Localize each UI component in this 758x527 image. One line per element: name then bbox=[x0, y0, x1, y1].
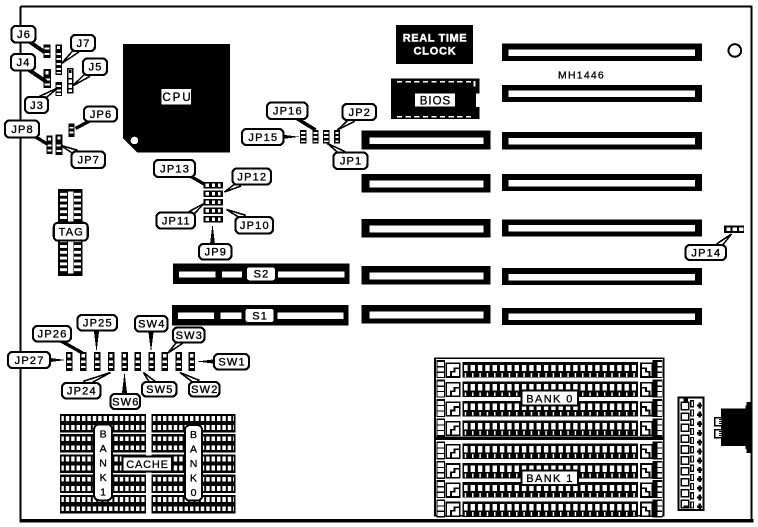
svg-text:JP15: JP15 bbox=[248, 132, 278, 144]
svg-text:JP27: JP27 bbox=[15, 355, 45, 367]
svg-text:B: B bbox=[100, 429, 107, 441]
svg-text:JP25: JP25 bbox=[83, 318, 113, 330]
svg-text:N: N bbox=[99, 458, 107, 470]
svg-text:JP14: JP14 bbox=[691, 247, 721, 259]
svg-text:J3: J3 bbox=[30, 100, 44, 112]
svg-text:SW6: SW6 bbox=[112, 396, 139, 408]
svg-text:SW5: SW5 bbox=[146, 384, 173, 396]
svg-text:JP13: JP13 bbox=[160, 163, 190, 175]
svg-text:JP11: JP11 bbox=[162, 215, 191, 227]
svg-text:JP16: JP16 bbox=[273, 106, 303, 118]
svg-text:SW3: SW3 bbox=[176, 330, 203, 342]
svg-text:N: N bbox=[190, 458, 198, 470]
svg-text:A: A bbox=[190, 444, 197, 456]
svg-text:MH1446: MH1446 bbox=[558, 70, 605, 82]
svg-text:J4: J4 bbox=[17, 57, 31, 69]
svg-text:J5: J5 bbox=[89, 62, 103, 74]
svg-text:JP26: JP26 bbox=[38, 329, 68, 341]
svg-text:JP6: JP6 bbox=[90, 109, 113, 121]
svg-text:CPU: CPU bbox=[162, 92, 192, 104]
svg-text:CACHE: CACHE bbox=[126, 459, 169, 471]
svg-text:JP24: JP24 bbox=[67, 386, 97, 398]
svg-text:BIOS: BIOS bbox=[420, 95, 451, 107]
svg-text:JP8: JP8 bbox=[11, 124, 34, 136]
svg-text:SW1: SW1 bbox=[218, 357, 245, 369]
svg-text:BANK 1: BANK 1 bbox=[526, 473, 574, 485]
svg-text:JP9: JP9 bbox=[205, 247, 228, 259]
svg-text:SW2: SW2 bbox=[191, 384, 218, 396]
svg-text:1: 1 bbox=[100, 487, 106, 499]
svg-text:0: 0 bbox=[191, 487, 197, 499]
svg-text:A: A bbox=[100, 443, 107, 455]
svg-text:S1: S1 bbox=[252, 310, 268, 322]
svg-text:JP2: JP2 bbox=[349, 107, 372, 119]
svg-text:S2: S2 bbox=[254, 269, 270, 281]
svg-text:CLOCK: CLOCK bbox=[413, 46, 456, 58]
svg-text:K: K bbox=[190, 473, 197, 485]
svg-text:JP7: JP7 bbox=[78, 155, 101, 167]
svg-text:JP1: JP1 bbox=[340, 156, 363, 168]
svg-text:JP12: JP12 bbox=[237, 171, 267, 183]
svg-text:B: B bbox=[190, 429, 197, 441]
svg-text:SW4: SW4 bbox=[138, 319, 165, 331]
svg-text:J6: J6 bbox=[17, 29, 31, 41]
svg-text:TAG: TAG bbox=[59, 227, 84, 239]
svg-text:K: K bbox=[100, 472, 107, 484]
svg-text:BANK 0: BANK 0 bbox=[526, 393, 574, 405]
svg-text:JP10: JP10 bbox=[240, 220, 270, 232]
svg-text:REAL TIME: REAL TIME bbox=[403, 33, 467, 45]
svg-text:J7: J7 bbox=[77, 38, 91, 50]
